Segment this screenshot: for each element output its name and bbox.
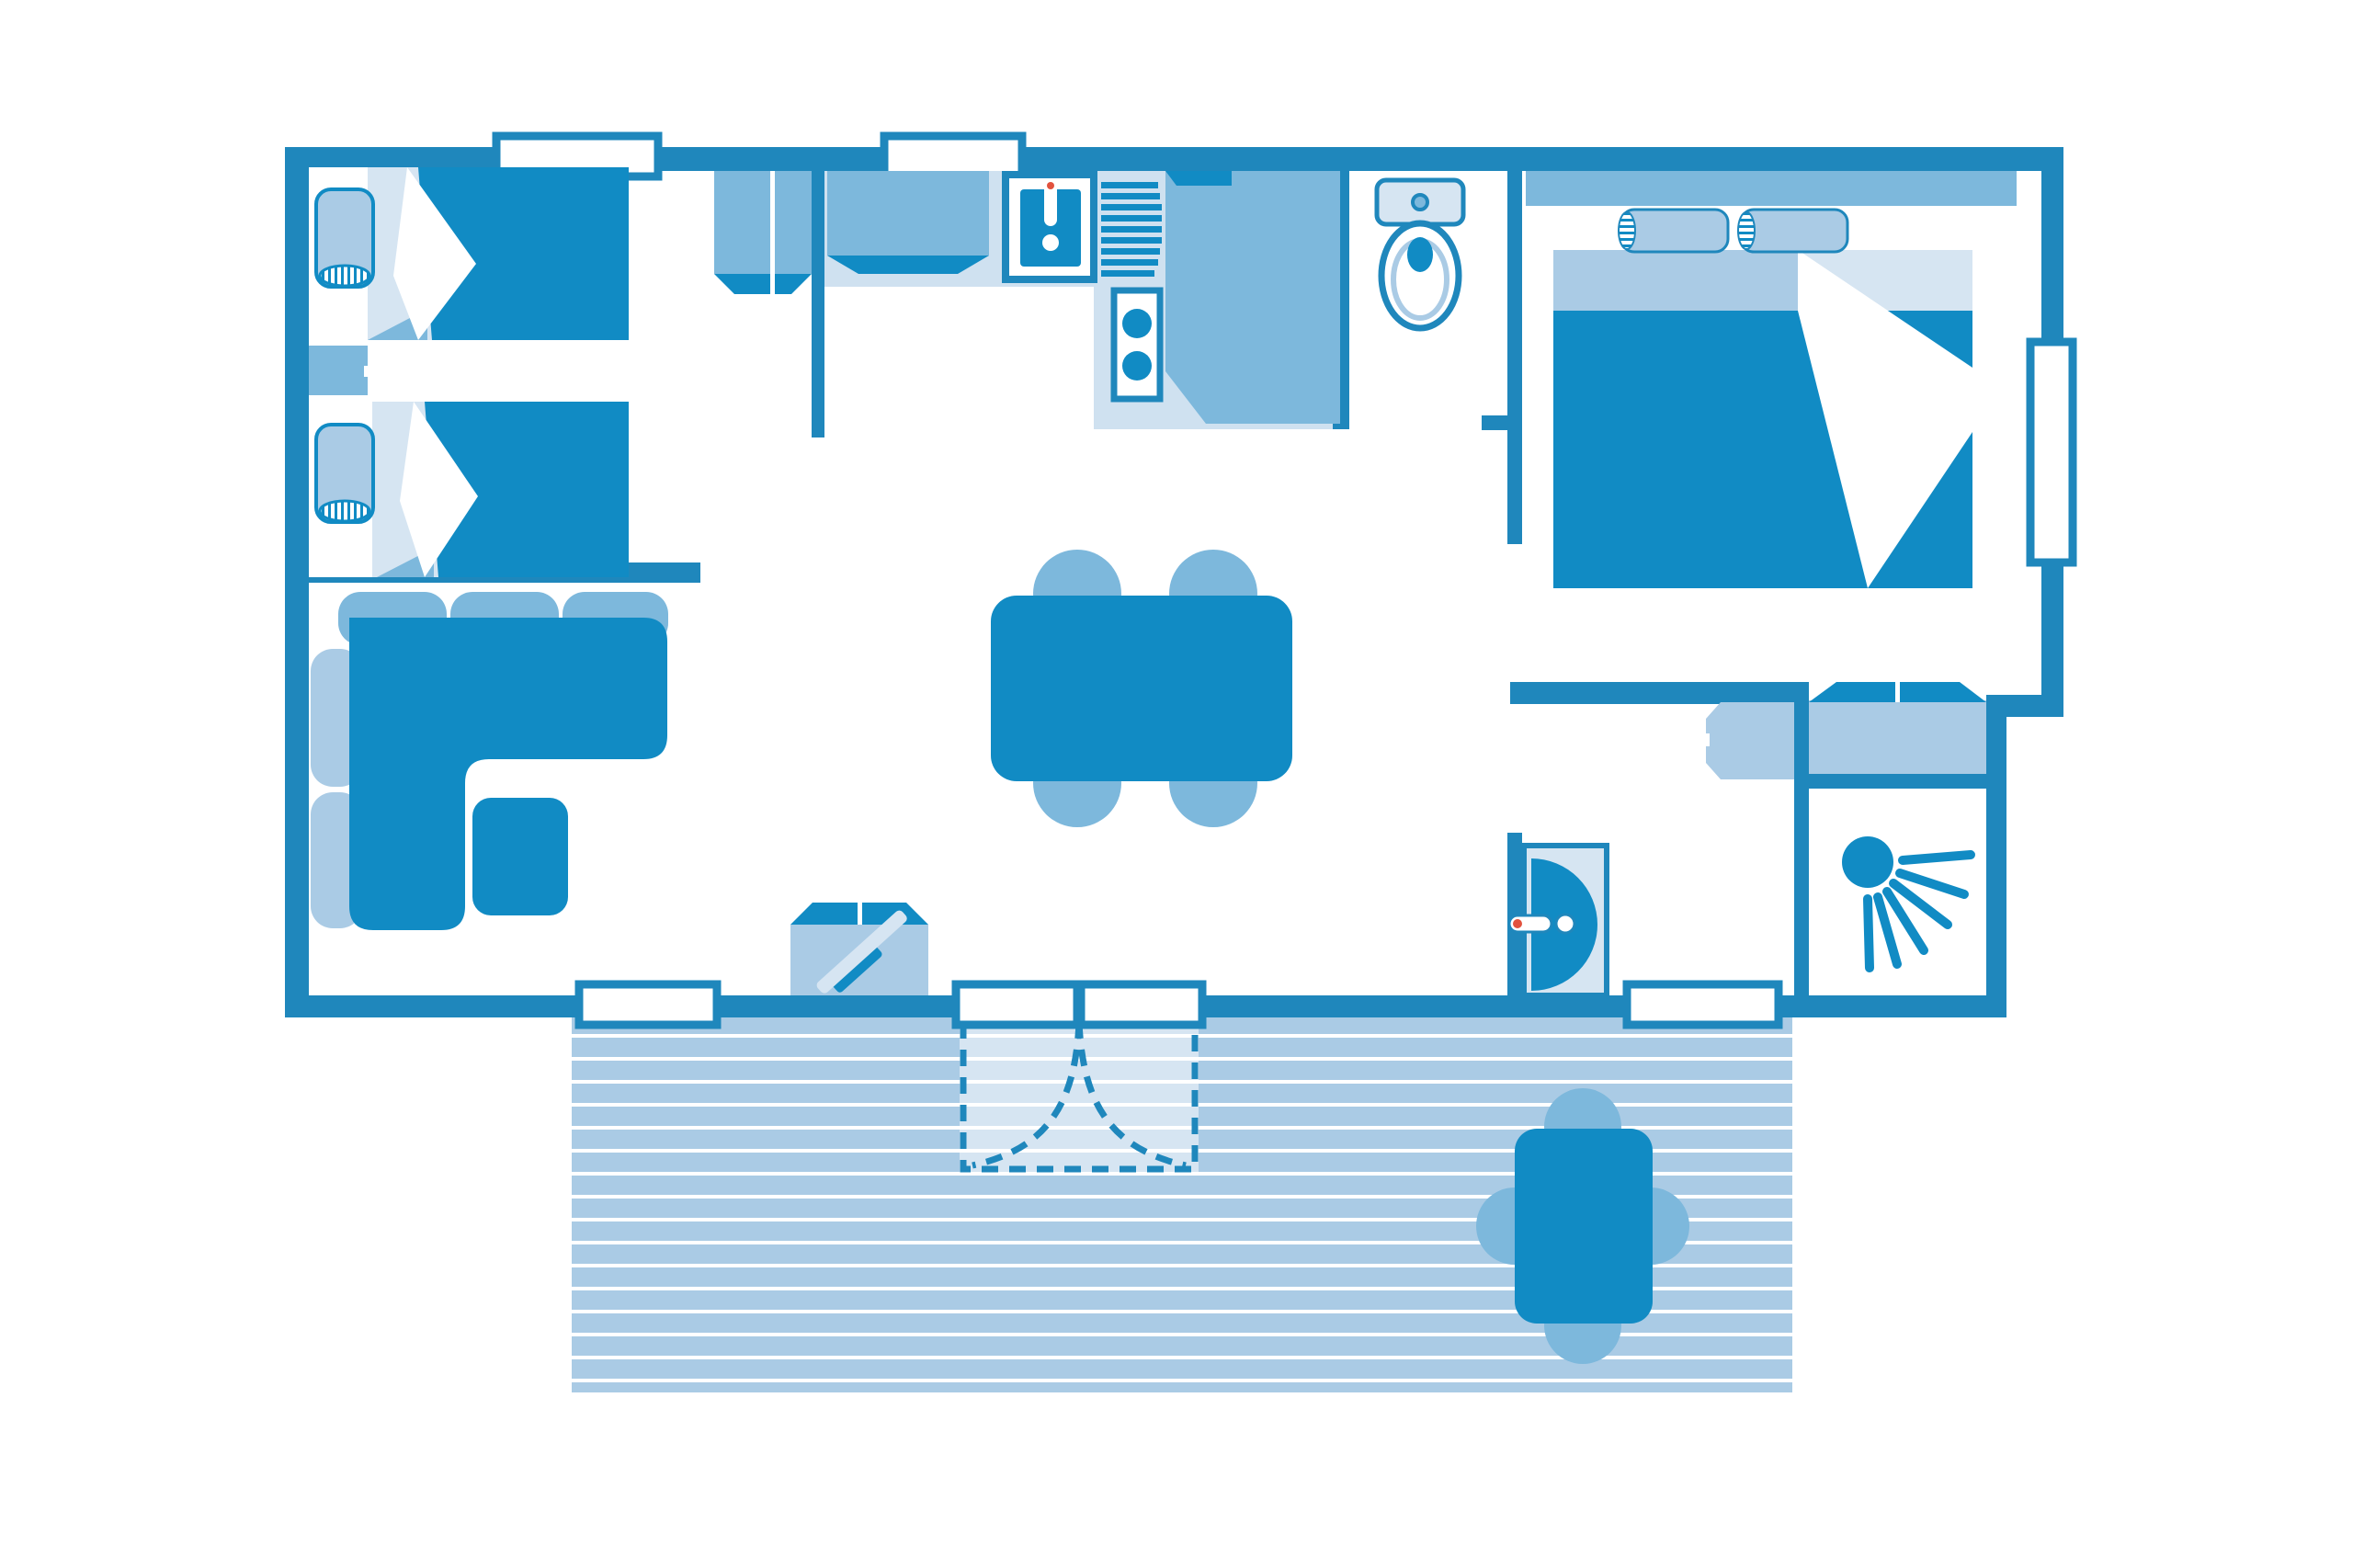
entrance-door-handle-dot [1513,919,1522,928]
window-master-bedroom [2030,342,2073,562]
floorplan-svg [0,0,2353,1568]
living-room [311,592,928,995]
hob-two-burners [1114,290,1160,399]
washbasin-cabinet [1702,702,1794,779]
entrance-door-knob [1556,915,1574,933]
closet-front [714,274,812,294]
shower-head-icon [1842,836,1971,968]
pillow-stripes [1619,212,1635,249]
dining-area [991,550,1292,827]
washbasin-notch [1702,733,1710,746]
washbasin-body [1706,702,1794,779]
tv-cabinet-seam [858,903,862,925]
window-entrance [1627,984,1779,1025]
floorplan-canvas [0,0,2353,1568]
wall-masterbedroom-west [1507,171,1522,544]
entrance-door [1509,846,1607,995]
headboard [1526,171,2017,206]
window-kitchen [884,136,1022,176]
wall-wc-door-nub [1482,415,1507,430]
pillow [1621,210,1728,252]
closet-seam [770,171,775,294]
coffee-table [472,798,568,915]
wardrobe [1809,682,1986,774]
single-bed-2 [309,402,629,577]
toilet-hole [1407,237,1433,272]
nightstand-handle [364,366,373,377]
double-bed [1553,206,1972,588]
toilet-button [1413,195,1427,210]
nightstand [309,346,368,395]
dining-table [991,596,1292,781]
sink-drain [1042,234,1059,251]
patio-door-pane-left [956,984,1077,1025]
burner [1122,351,1152,381]
window-living-room [579,984,717,1025]
kitchen-sink [1006,175,1094,279]
drainer [1101,182,1162,277]
wall-wardrobe-shower [1794,772,1986,789]
wall-masterbedroom-south [1510,682,1809,704]
faucet-dot [1047,182,1054,189]
closet [714,171,812,294]
pillow-stripes [320,501,369,521]
wall-kitchen-twinroom [812,171,824,437]
bed-band [1553,250,1798,311]
shower-room [1842,836,1971,968]
single-bed-1 [309,167,629,340]
pillow-stripes [1738,212,1755,249]
hob-panel [1114,290,1160,399]
kitchen-unit-north [827,171,989,256]
kitchen [824,171,1340,429]
deck-terrace [572,1017,1792,1392]
master-bedroom [1526,171,2017,588]
wardrobe-body [1809,700,1986,774]
deck-door-swing-zone [960,1017,1199,1175]
wall-right-lower [1986,695,2006,1017]
fridge-cabinet [1165,171,1340,424]
twin-bedroom [309,167,812,577]
tv-cabinet [790,903,928,995]
deck-table [1515,1129,1653,1324]
fridge-cabinet-edge [1165,171,1232,186]
closet-body [714,171,812,274]
pillow [1741,210,1847,252]
shower-head [1842,836,1893,888]
pillow-stripes [320,266,369,286]
toilet [1377,180,1463,328]
patio-door-pane-right [1081,984,1202,1025]
wall-shower-west [1794,682,1809,1017]
burner [1122,309,1152,338]
wardrobe-seam [1895,682,1900,702]
wc-room [1377,180,1463,328]
